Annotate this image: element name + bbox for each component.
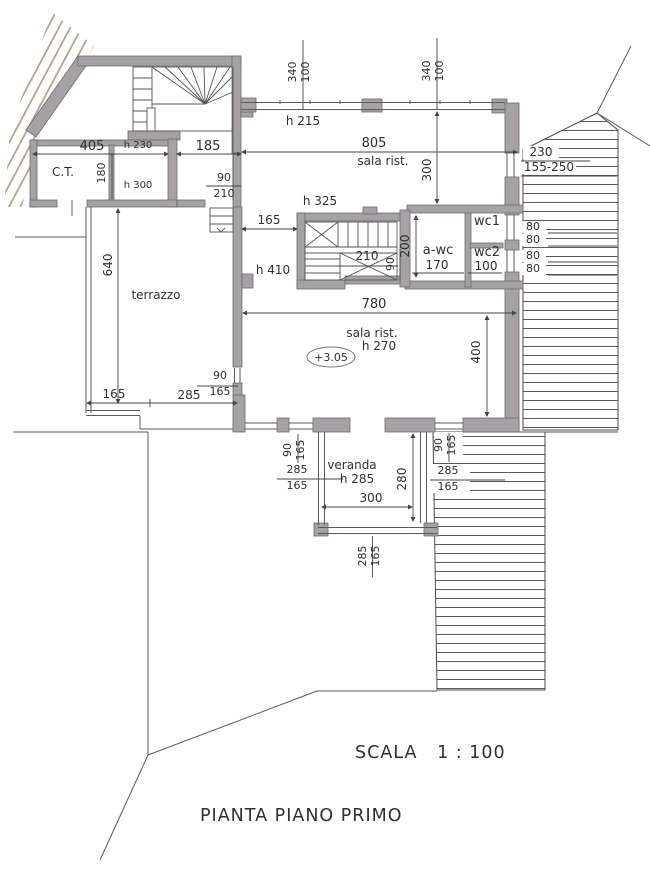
- dim-170-awc: 170: [426, 258, 449, 272]
- height-h215: h 215: [286, 114, 320, 128]
- wall-ct-east: [168, 139, 177, 207]
- dim-285-165-right-num: 285: [438, 464, 459, 477]
- dim-285-terrazzo: 285: [178, 388, 201, 402]
- dim-90-165-right-num: 90: [432, 438, 445, 452]
- dim-340-left: 340: [286, 62, 299, 83]
- room-veranda: veranda: [327, 458, 376, 472]
- dim-80-4: 80: [526, 262, 540, 275]
- dim-90-165-left-den: 165: [294, 440, 307, 461]
- dim-155-250: 155-250: [524, 160, 574, 174]
- dim-280-vert: 280: [395, 468, 409, 491]
- room-wc1: wc1: [474, 214, 500, 229]
- room-wc2: wc2: [474, 245, 500, 260]
- dim-100-right: 100: [433, 61, 446, 82]
- veranda-post-southwest: [314, 523, 328, 536]
- dim-200-awc: 200: [398, 235, 412, 258]
- wall-west-main: [233, 207, 242, 367]
- elevation: +3.05: [314, 351, 348, 364]
- dim-90-165-wall-den: 165: [210, 385, 231, 398]
- height-h230: h 230: [124, 140, 153, 151]
- dim-90-stair: 90: [384, 257, 397, 271]
- dim-285-165-bottom-num: 285: [356, 546, 369, 567]
- drawing-title: PIANTA PIANO PRIMO: [200, 806, 403, 826]
- height-h270: h 270: [362, 339, 396, 353]
- veranda-post-southeast: [424, 523, 438, 536]
- dim-300-veranda: 300: [360, 491, 383, 505]
- dim-185: 185: [196, 139, 221, 154]
- dim-780: 780: [362, 297, 387, 312]
- roof-areas: [430, 46, 650, 690]
- floor-plan-page: 340100340100h 215805sala rist.300230155-…: [0, 0, 650, 893]
- dim-165-terrazzo: 165: [103, 387, 126, 401]
- dim-90-210-den: 210: [214, 187, 235, 200]
- dim-100-wc2: 100: [475, 259, 498, 273]
- dim-210-stair: 210: [356, 249, 379, 263]
- dim-180: 180: [95, 163, 108, 184]
- dim-90-165-wall-num: 90: [213, 369, 227, 382]
- wall-stair2-west: [297, 213, 305, 288]
- dim-285-165-left-num: 285: [287, 463, 308, 476]
- dim-640-vert: 640: [101, 254, 115, 277]
- dim-805: 805: [362, 136, 387, 151]
- wall-north-stair: [78, 56, 241, 66]
- room-sala-rist-north: sala rist.: [357, 154, 408, 168]
- dim-90-165-right-den: 165: [445, 435, 458, 456]
- dim-100-left: 100: [299, 62, 312, 83]
- height-h325: h 325: [303, 194, 337, 208]
- dim-285-165-bottom-den: 165: [369, 546, 382, 567]
- height-h300: h 300: [124, 180, 153, 191]
- dim-80-2: 80: [526, 233, 540, 246]
- room-ct: C.T.: [52, 165, 74, 179]
- dim-90-210-num: 90: [217, 171, 231, 184]
- dim-405: 405: [80, 139, 105, 154]
- wall-east-main: [505, 103, 519, 153]
- height-h285: h 285: [340, 472, 374, 486]
- dim-230: 230: [530, 145, 553, 159]
- dim-165-stair: 165: [258, 213, 281, 227]
- wall-ct-west: [30, 140, 37, 207]
- wall-ct-partition: [109, 145, 114, 201]
- scale-label: SCALA 1 : 100: [355, 743, 506, 763]
- dim-400-vert: 400: [469, 341, 483, 364]
- dim-285-165-left-den: 165: [287, 479, 308, 492]
- dim-80-3: 80: [526, 249, 540, 262]
- floor-plan-drawing: 340100340100h 215805sala rist.300230155-…: [0, 0, 650, 893]
- height-h410: h 410: [256, 263, 290, 277]
- dim-285-165-right-den: 165: [438, 480, 459, 493]
- dim-90-165-left-num: 90: [281, 443, 294, 457]
- wall-stair2-north: [297, 213, 407, 221]
- wall-pillar-north: [362, 99, 382, 112]
- roof-ridge-line: [597, 46, 631, 113]
- wall-awc-wc-divider: [465, 213, 471, 287]
- dim-340-right: 340: [420, 61, 433, 82]
- dim-80-1: 80: [526, 220, 540, 233]
- wall-wc-north: [407, 205, 523, 213]
- room-awc: a-wc: [423, 243, 453, 258]
- room-terrazzo: terrazzo: [131, 288, 180, 302]
- room-sala-rist-south: sala rist.: [346, 326, 397, 340]
- dim-300-vert: 300: [420, 159, 434, 182]
